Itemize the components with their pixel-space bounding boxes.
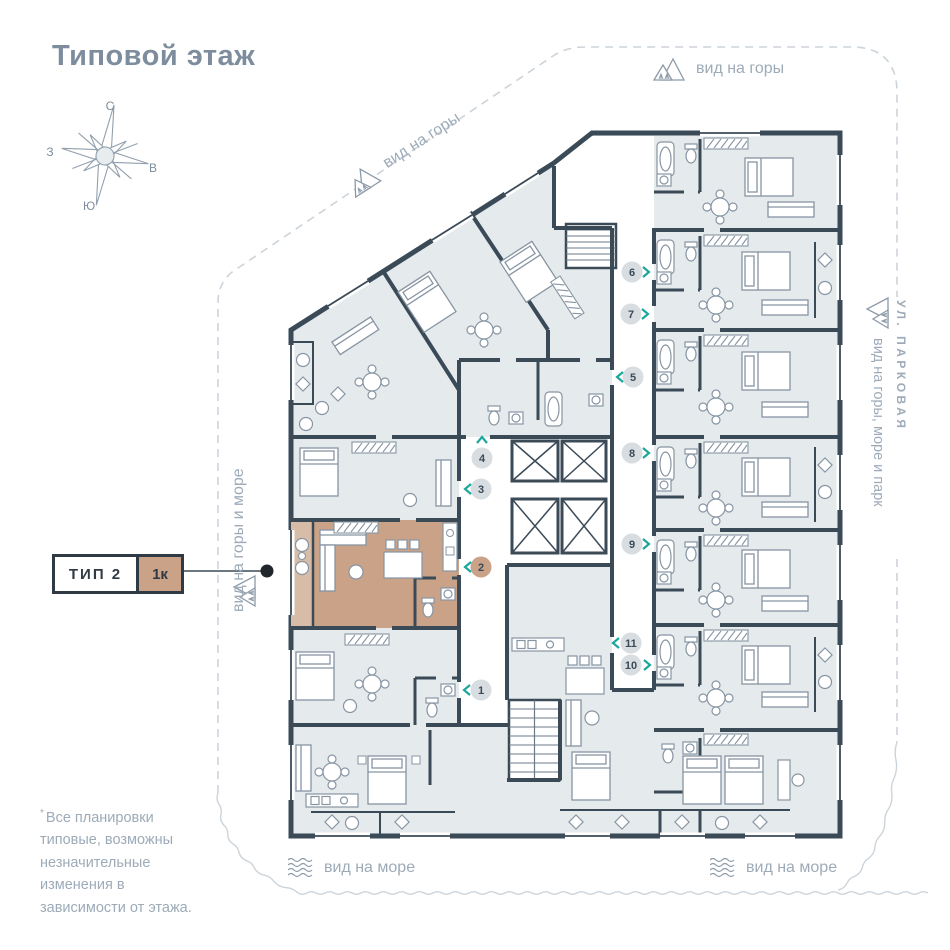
- view-label-left: вид на горы и море: [230, 412, 248, 612]
- unit-type-label: ТИП 2: [55, 557, 136, 591]
- compass-rose: С В Ю З: [46, 97, 157, 213]
- svg-text:8: 8: [629, 448, 635, 460]
- svg-text:11: 11: [625, 638, 637, 650]
- svg-text:3: 3: [478, 484, 484, 496]
- unit-rooms-badge: 1к: [136, 557, 181, 591]
- svg-text:10: 10: [625, 660, 637, 672]
- view-label-sea-right: вид на море: [710, 858, 837, 878]
- svg-text:7: 7: [628, 309, 634, 321]
- unit-type-callout[interactable]: ТИП 2 1к: [52, 554, 184, 594]
- footnote-text: Все планировки типовые, возможны незначи…: [40, 810, 192, 916]
- waves-icon: [288, 858, 314, 878]
- footnote-marker: *: [40, 808, 44, 819]
- mountain-icon: [867, 298, 888, 328]
- view-label-text: вид на море: [746, 859, 837, 877]
- svg-text:5: 5: [630, 372, 636, 384]
- svg-text:6: 6: [629, 267, 635, 279]
- stairs-top: [566, 224, 616, 268]
- street-label: УЛ. ПАРКОВАЯ: [894, 300, 908, 570]
- compass-west: З: [46, 145, 53, 159]
- compass-east: В: [149, 161, 157, 175]
- svg-text:2: 2: [478, 562, 484, 574]
- stairs-bottom: [509, 700, 560, 780]
- view-label-text: вид на горы и море: [230, 468, 248, 612]
- view-label-mountains-top: вид на горы: [652, 56, 784, 82]
- compass-south: Ю: [83, 199, 95, 213]
- floorplan-page: С В Ю З: [0, 0, 950, 950]
- page-title: Типовой этаж: [52, 40, 255, 73]
- view-label-text: вид на горы: [696, 60, 784, 78]
- svg-text:1: 1: [478, 685, 484, 697]
- unit-2-highlight[interactable]: [291, 520, 459, 628]
- waves-icon: [710, 858, 736, 878]
- footnote: *Все планировки типовые, возможны незнач…: [40, 806, 212, 919]
- building: 1 2 3 4 5: [291, 133, 840, 836]
- mountain-icon: [652, 56, 686, 82]
- compass-north: С: [106, 99, 115, 113]
- view-label-text: вид на горы, море и парк: [870, 338, 886, 507]
- view-label-right: вид на горы, море и парк: [870, 338, 886, 608]
- svg-text:9: 9: [629, 539, 635, 551]
- view-label-text: вид на море: [324, 859, 415, 877]
- svg-text:4: 4: [479, 453, 486, 465]
- view-label-sea-left: вид на море: [288, 858, 415, 878]
- callout-leader: [180, 565, 274, 578]
